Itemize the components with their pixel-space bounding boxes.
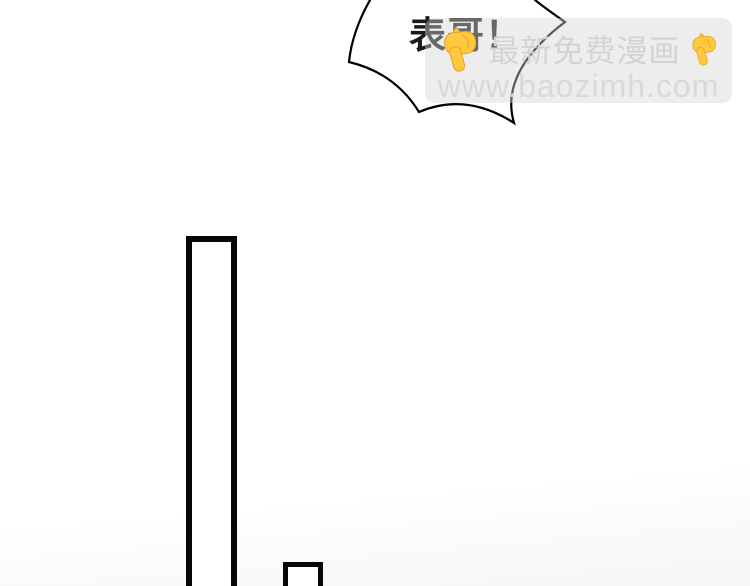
pointing-down-icon xyxy=(688,28,720,70)
watermark-overlay: 最新免费漫画 www.baozimh.com xyxy=(425,18,732,103)
watermark-title-row: 最新免费漫画 xyxy=(425,25,732,71)
pointing-down-icon xyxy=(438,26,482,72)
watermark-url: www.baozimh.com xyxy=(425,68,732,105)
page-shading xyxy=(0,460,750,586)
comic-panel-frame-tall xyxy=(186,236,237,586)
comic-panel-frame-small xyxy=(283,562,323,586)
watermark-title: 最新免费漫画 xyxy=(489,26,681,71)
comic-page: 表哥！ 最新免费漫画 www.baozimh.com xyxy=(0,0,750,586)
